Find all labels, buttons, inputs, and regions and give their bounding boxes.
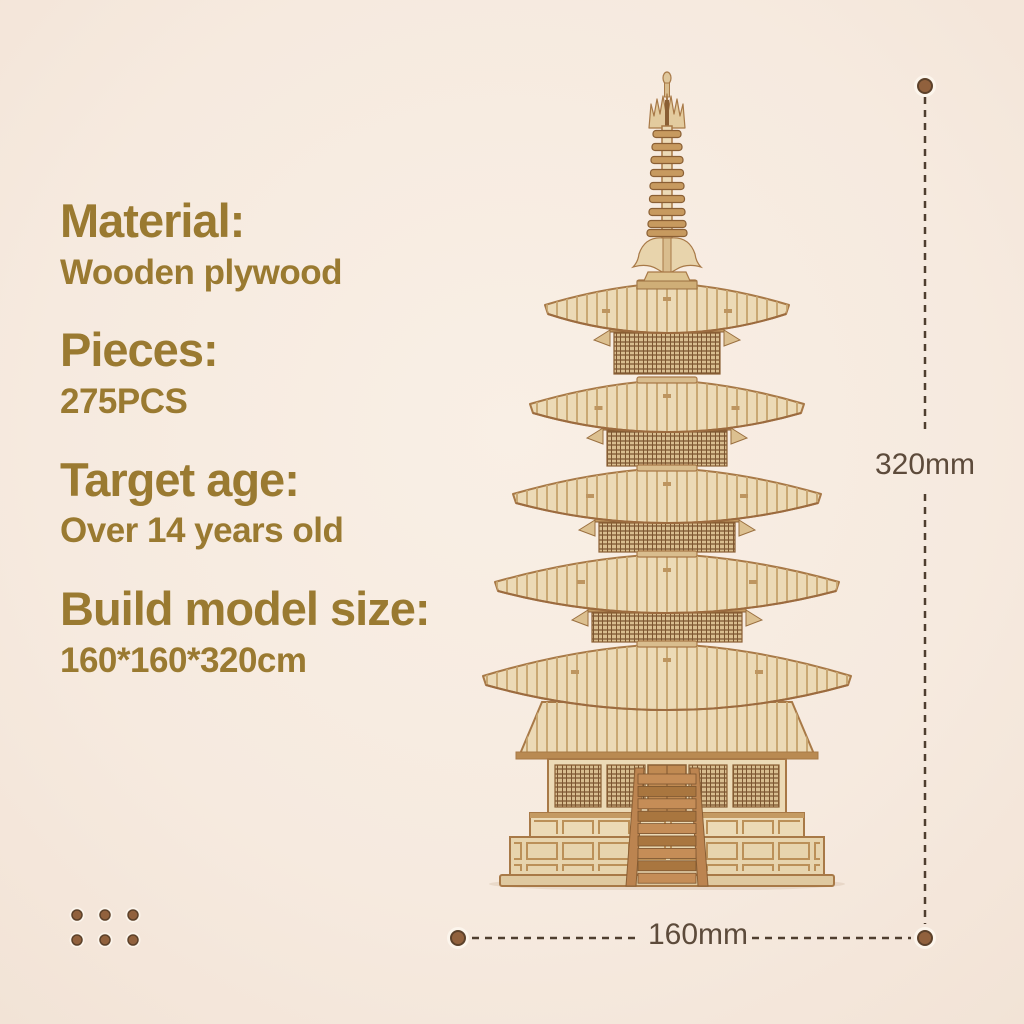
spec-value-build-size: 160*160*320cm [60,642,530,681]
spec-material: Material: Wooden plywood [60,196,530,292]
model-shadow [489,877,845,890]
spec-heading-pieces: Pieces: [60,325,530,376]
spec-value-material: Wooden plywood [60,254,530,293]
spec-heading-material: Material: [60,196,530,247]
spec-target-age: Target age: Over 14 years old [60,455,530,551]
spec-heading-build-size: Build model size: [60,584,530,635]
pagoda-balcony-railings [572,318,762,642]
spec-value-target-age: Over 14 years old [60,512,530,551]
spec-heading-target-age: Target age: [60,455,530,506]
product-infographic: Material: Wooden plywood Pieces: 275PCS … [0,0,1024,1024]
pagoda-spire [633,72,701,289]
spec-list: Material: Wooden plywood Pieces: 275PCS … [60,196,530,713]
spec-value-pieces: 275PCS [60,383,530,422]
spec-build-size: Build model size: 160*160*320cm [60,584,530,680]
spec-pieces: Pieces: 275PCS [60,325,530,421]
pagoda-roof-tiers [483,280,851,710]
height-dimension-label: 320mm [872,448,978,482]
decorative-dot-grid [60,898,152,956]
pagoda-ground-floor [500,702,834,886]
width-dimension-label: 160mm [640,918,756,952]
pagoda-stairs [626,768,708,886]
